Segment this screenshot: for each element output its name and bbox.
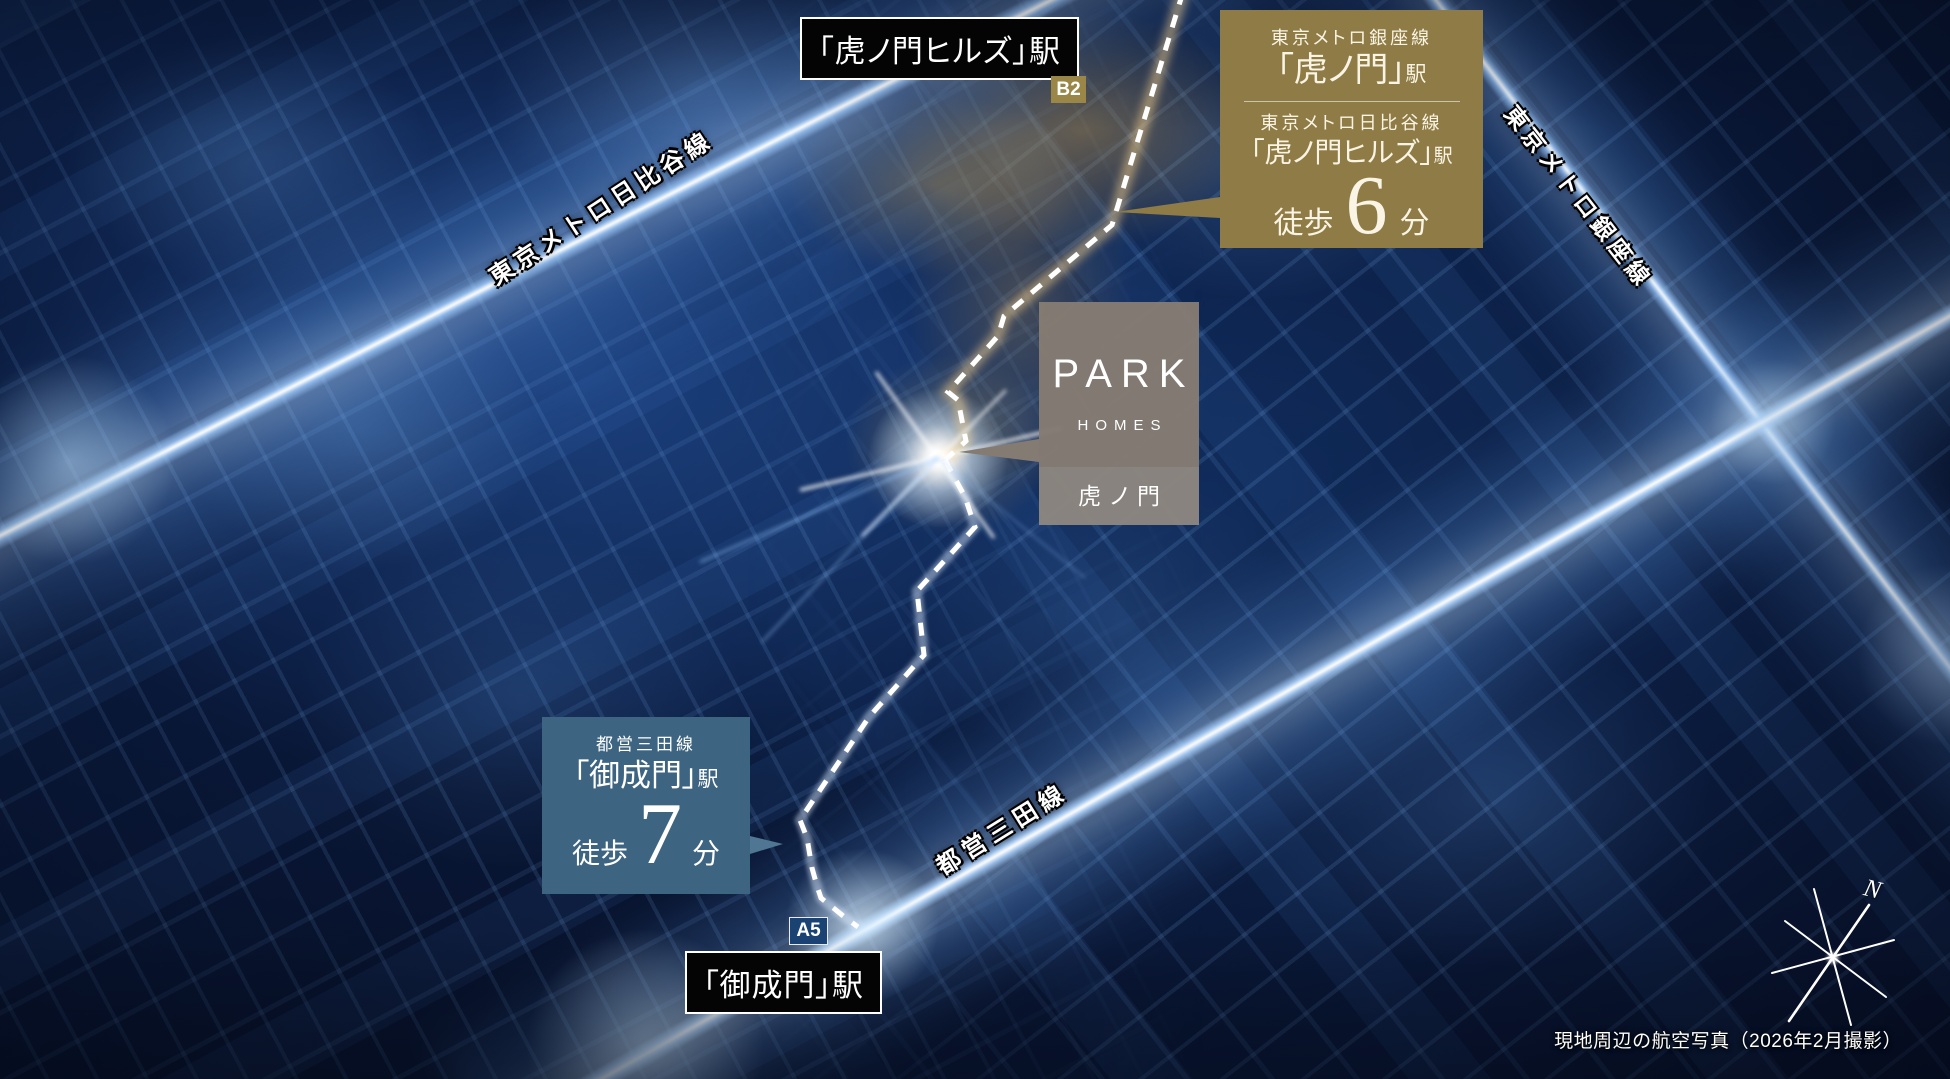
map-label-ginza-line: 東京メトロ銀座線 <box>1498 97 1663 294</box>
access-card-onarimon: 都営三田線 「御成門」駅 徒歩 7 分 <box>542 717 750 894</box>
station-suffix: 駅 <box>698 767 719 791</box>
exit-badge-a5: A5 <box>789 917 828 945</box>
walk-unit: 分 <box>692 832 720 872</box>
walk-unit: 分 <box>1400 198 1430 242</box>
homes-logo-text: HOMES <box>1039 417 1199 434</box>
walk-label: 徒歩 <box>1274 198 1334 242</box>
walk-time-row: 徒歩 7 分 <box>542 798 750 873</box>
photo-caption: 現地周辺の航空写真（2026年2月撮影） <box>1554 1026 1902 1053</box>
city-grid-right <box>0 0 1950 1079</box>
route-amber-glow <box>0 0 1950 1079</box>
walk-minutes: 6 <box>1346 170 1388 241</box>
station-suffix: 駅 <box>1434 146 1453 167</box>
vignette <box>0 0 1950 1079</box>
walk-minutes: 7 <box>638 798 682 873</box>
building-highlights <box>0 0 1950 1079</box>
mita-line-name: 都営三田線 <box>542 730 750 755</box>
ginza-line-name: 東京メトロ銀座線 <box>1220 24 1483 50</box>
station-label-onarimon: 「御成門」駅 <box>685 951 882 1014</box>
station-label-toranomon-hills: 「虎ノ門ヒルズ」駅 <box>800 17 1079 80</box>
map-label-mita-line: 都営三田線 <box>928 772 1074 881</box>
park-logo-text: PARK <box>1039 302 1199 397</box>
map-label-hibiya-line: 東京メトロ日比谷線 <box>481 120 719 292</box>
toranomon-station-text: 「虎ノ門」 <box>1277 52 1406 89</box>
blue-card-pointer <box>750 836 783 854</box>
aerial-access-map: 東京メトロ日比谷線 東京メトロ銀座線 都営三田線 「虎ノ門ヒルズ」駅 「御成門」… <box>0 0 1950 1079</box>
gold-card-pointer <box>1115 197 1220 218</box>
access-card-toranomon: 東京メトロ銀座線 「虎ノ門」駅 東京メトロ日比谷線 「虎ノ門ヒルズ」駅 徒歩 6… <box>1220 10 1483 248</box>
walk-time-row: 徒歩 6 分 <box>1220 170 1483 242</box>
toranomon-hills-station-text: 「虎ノ門ヒルズ」 <box>1250 138 1433 169</box>
route-overlay <box>0 0 1950 1079</box>
light-flares <box>0 0 1950 1079</box>
hibiya-line-name: 東京メトロ日比谷線 <box>1220 109 1483 135</box>
station-suffix: 駅 <box>1405 62 1426 86</box>
card-divider <box>1244 101 1460 102</box>
property-location-glow <box>858 378 1018 538</box>
compass-star <box>1772 889 1894 1025</box>
exit-badge-b2: B2 <box>1051 76 1086 103</box>
compass-north-label: N <box>1861 874 1884 905</box>
city-grid-left <box>0 0 1950 1079</box>
aerial-photo-background <box>0 0 1950 1079</box>
property-name: 虎ノ門 <box>1039 467 1199 525</box>
property-card: PARK HOMES 虎ノ門 <box>1039 302 1199 525</box>
property-card-top: PARK HOMES <box>1039 302 1199 467</box>
toranomon-station-name: 「虎ノ門」駅 <box>1220 51 1483 92</box>
walk-label: 徒歩 <box>572 832 628 872</box>
